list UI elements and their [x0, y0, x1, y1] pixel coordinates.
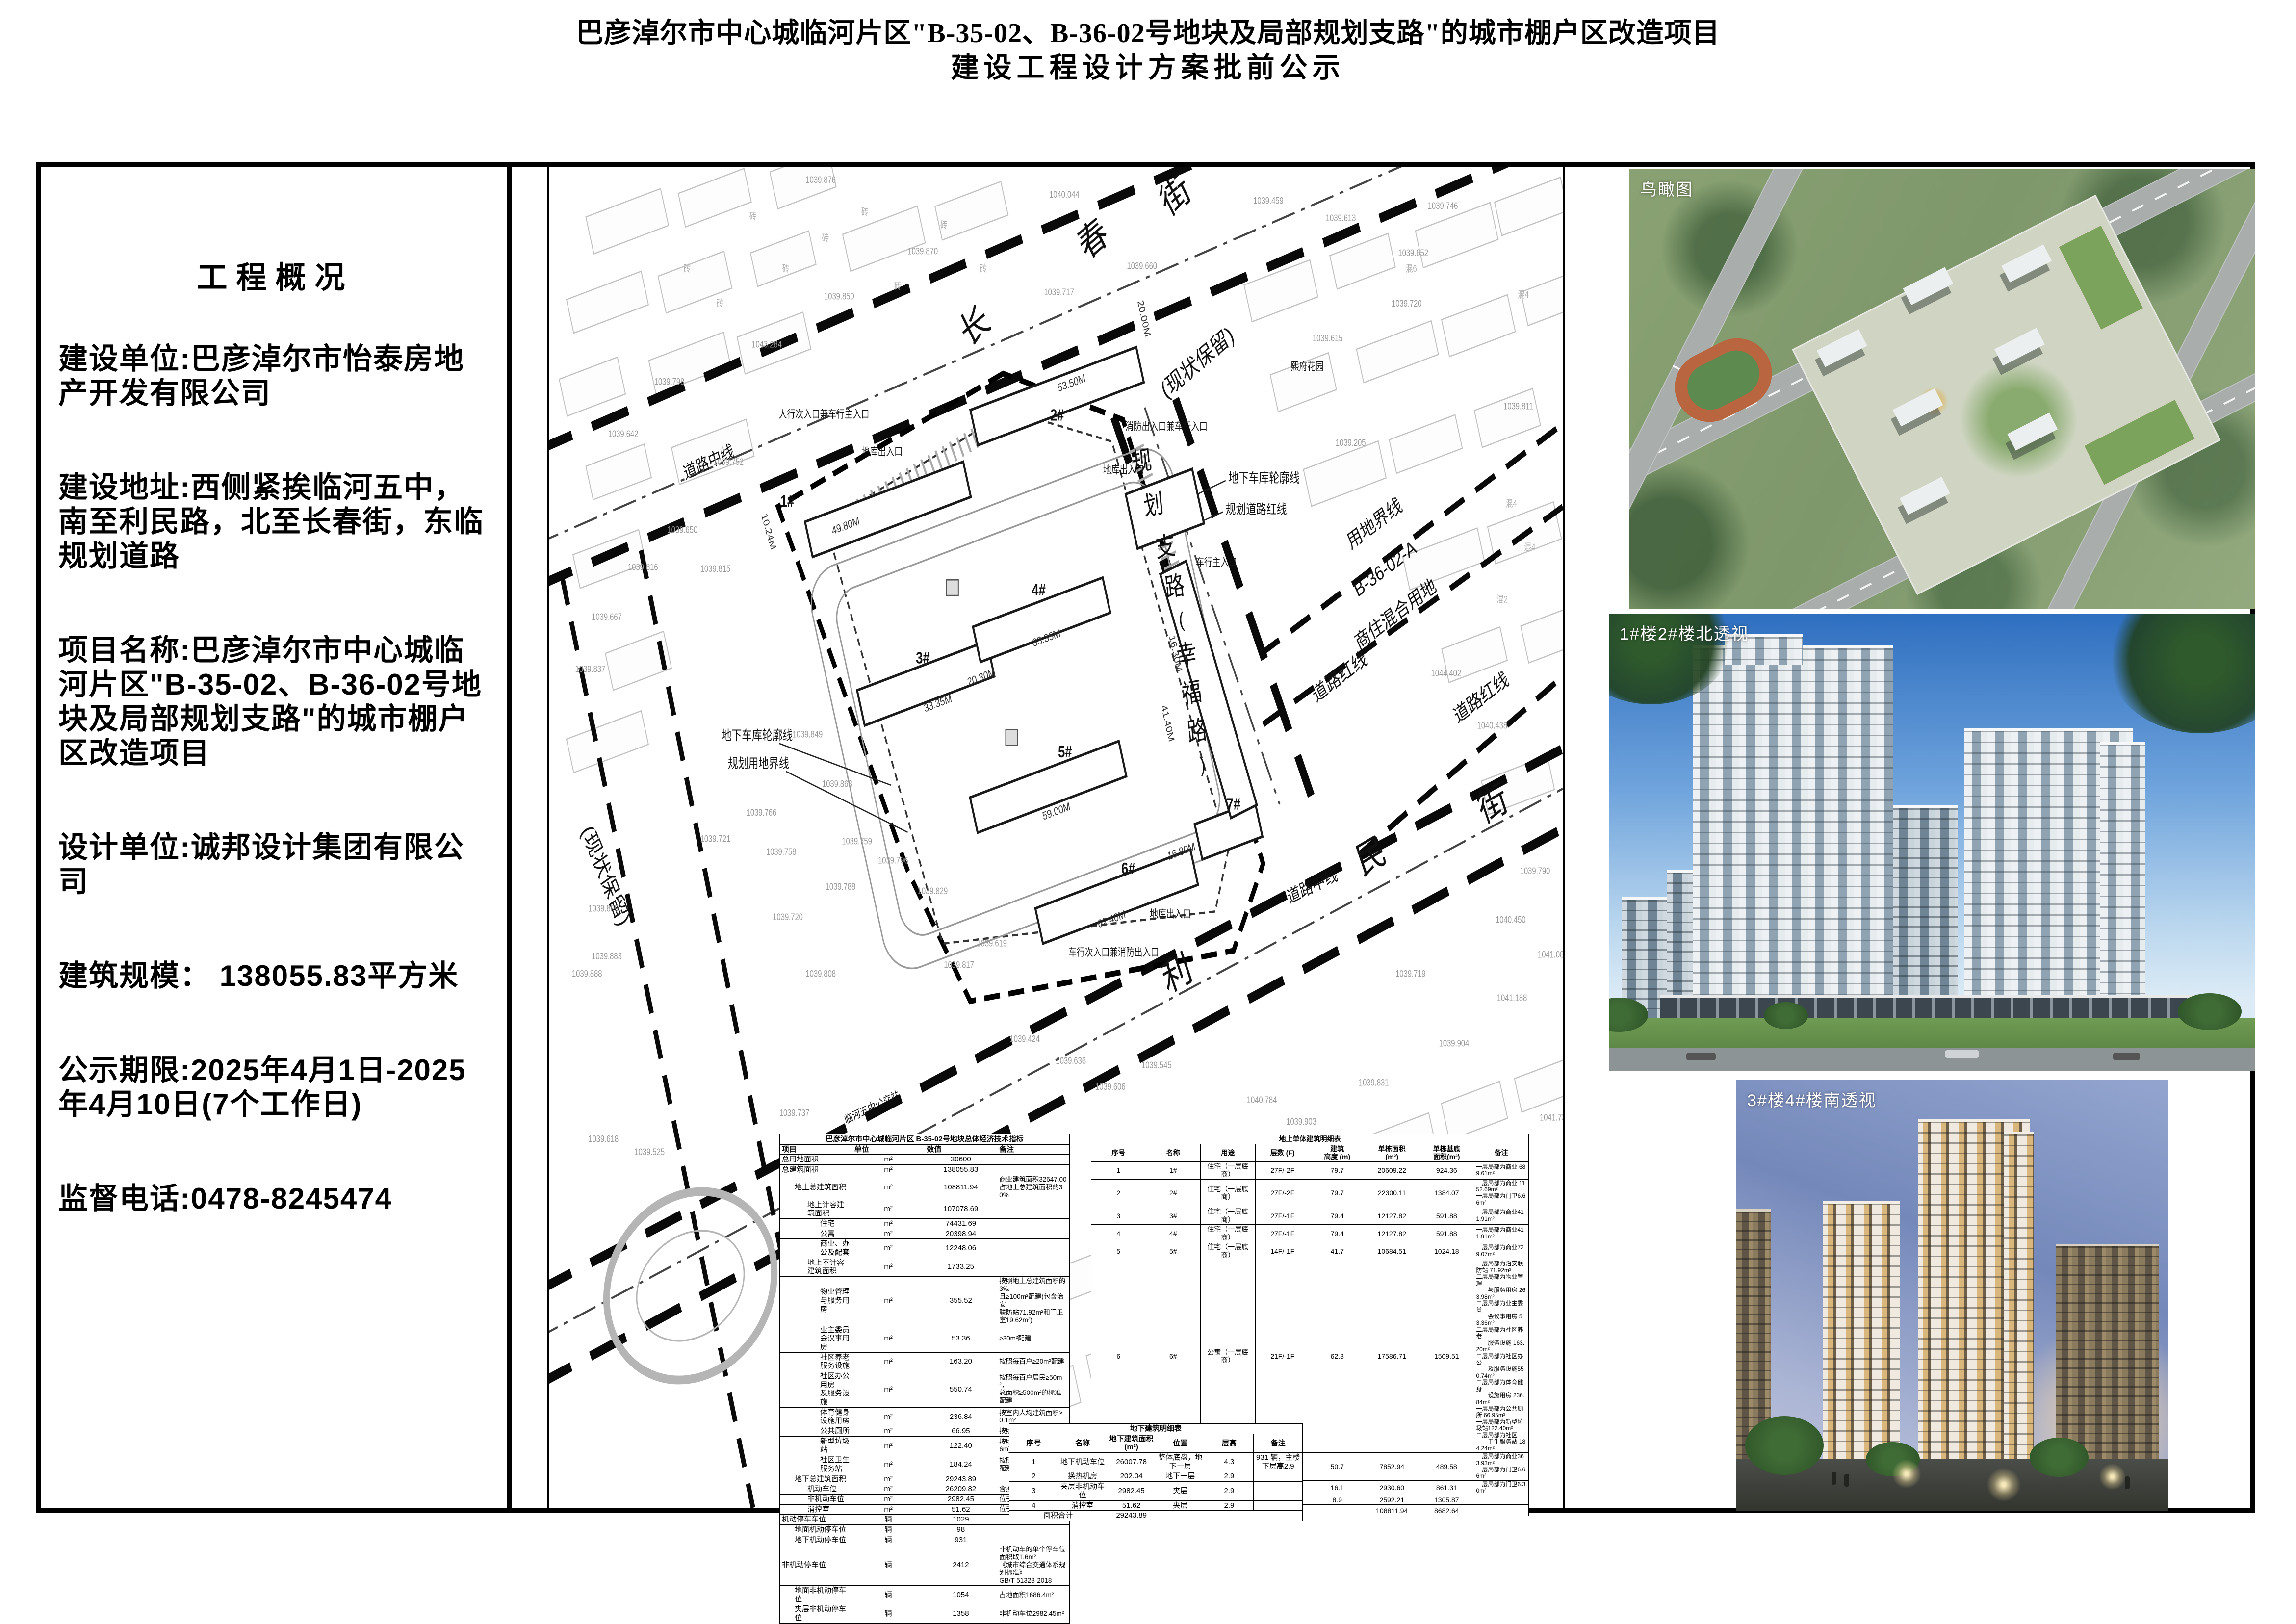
plan-label-spot: 1040.784 — [1247, 1094, 1277, 1106]
parcel-outline — [1330, 233, 1395, 289]
plan-label-spot: 1041.188 — [1497, 992, 1527, 1004]
project-overview-panel: 工程概况 建设单位:巴彦淖尔市怡泰房地产开发有限公司建设地址:西侧紧挨临河五中，… — [41, 167, 507, 1508]
plan-label-spot: 1039.798 — [654, 376, 685, 387]
rendering-aerial: 鸟瞰图 — [1629, 169, 2255, 609]
table-row: 地面机动停车位辆98 — [780, 1524, 1070, 1535]
grass-strip — [1609, 1018, 2255, 1050]
plan-label-spot: 1040.044 — [1049, 189, 1080, 200]
table-cell — [997, 1524, 1070, 1535]
aerial-running-track — [1663, 326, 1784, 434]
plan-label-spot: 1043.284 — [751, 338, 782, 350]
table-header: 位置 — [1156, 1434, 1205, 1452]
table-cell: m² — [852, 1371, 925, 1407]
aerial-site-block — [1792, 195, 2220, 595]
table-cell — [997, 1239, 1070, 1258]
table-cell: 924.36 — [1419, 1161, 1474, 1179]
overview-paragraph: 公示期限:2025年4月1日-2025年4月10日(7个工作日) — [58, 1053, 492, 1122]
table-cell: 22300.11 — [1365, 1179, 1419, 1207]
table-cell: m² — [852, 1352, 925, 1371]
table-cell: ≥30m²配建 — [997, 1325, 1070, 1352]
parcel-outline — [567, 271, 648, 333]
aerial-tower — [1893, 389, 1943, 427]
table-cell: 总建筑面积 — [780, 1165, 852, 1175]
table-cell: 业主委员会议事用房 — [780, 1325, 852, 1352]
plan-label-spot: 1041.738 — [1540, 1111, 1563, 1123]
plan-label-spot: 1039.903 — [1286, 1116, 1316, 1127]
table-cell: 74431.69 — [925, 1218, 997, 1229]
table-cell: m² — [852, 1436, 925, 1455]
plan-label-big: 长 — [954, 297, 996, 354]
tower-3 — [1823, 1201, 1900, 1470]
table-cell: m² — [852, 1155, 925, 1165]
table-row: 公寓m²20398.94 — [780, 1229, 1070, 1239]
aerial-tower — [2001, 245, 2052, 283]
table-cell: 8.9 — [1310, 1495, 1365, 1505]
plan-label-spot: 1039.829 — [918, 885, 948, 897]
table-cell: 辆 — [852, 1515, 925, 1525]
person — [2125, 1476, 2130, 1489]
table-cell: 26007.78 — [1107, 1453, 1156, 1471]
overview-paragraph: 项目名称:巴彦淖尔市中心城临河片区"B-35-02、B-36-02号地块及局部规… — [58, 633, 492, 771]
car — [1945, 1050, 1979, 1058]
parcel-outline — [586, 189, 669, 254]
table-cell: 夹层非机动停车位 — [780, 1604, 852, 1623]
table-header: 单栋面积 (m²) — [1365, 1144, 1419, 1161]
rendering-south-view: 3#楼4#楼南透视 — [1736, 1080, 2168, 1511]
plan-label-spot: 1039.619 — [977, 937, 1007, 949]
table-cell: m² — [852, 1239, 925, 1258]
tower-2-wing — [2100, 742, 2145, 1014]
table-cell: m² — [852, 1407, 925, 1426]
plan-label-spot: 1041.087 — [1538, 949, 1563, 960]
plan-label-spot: 1039.868 — [822, 778, 852, 790]
overview-paragraphs: 建设单位:巴彦淖尔市怡泰房地产开发有限公司建设地址:西侧紧挨临河五中，南至利民路… — [58, 342, 492, 1216]
table-cell: m² — [852, 1229, 925, 1239]
table-cell: 1509.51 — [1419, 1260, 1474, 1453]
plan-label-med: 支 — [1154, 531, 1177, 564]
aerial-tower — [1817, 330, 1867, 367]
table-row: 3夹层非机动车位2982.45夹层2.9 — [1009, 1482, 1303, 1500]
plan-label-spot: 1039.652 — [1398, 247, 1428, 258]
plan-label-spot: 1039.904 — [1439, 1037, 1470, 1049]
table-row: 地上不计容建筑面积m²1733.25 — [780, 1258, 1070, 1276]
table-cell — [997, 1155, 1070, 1165]
underground-buildings-table: 地下建筑明细表序号名称地下建筑面积(m²)位置层高备注1地下机动车位26007.… — [1009, 1423, 1303, 1521]
table-cell: 住宅（一层底商） — [1201, 1242, 1256, 1260]
parcel-outline — [935, 181, 1008, 240]
plan-label-spot: 1039.849 — [793, 728, 823, 740]
table-row: 2换热机房202.04地下一层2.9 — [1009, 1471, 1303, 1482]
table-cell: 地上计容建筑面积 — [780, 1200, 852, 1218]
plan-label-m2: 道路红线 — [1309, 647, 1370, 707]
plan-label-spot: 1044.402 — [1431, 668, 1462, 679]
table-cell: 29243.89 — [1107, 1511, 1156, 1521]
table-cell: 新型垃圾站 — [780, 1436, 852, 1455]
table-title: 巴彦淖尔市中心城临河片区 B-35-02号地块总体经济技术指标 — [780, 1134, 1070, 1145]
plan-label-spot: 1039.636 — [1056, 1055, 1086, 1066]
table-cell: 66.95 — [925, 1426, 997, 1437]
table-cell: 1054 — [925, 1585, 997, 1604]
economic-indicators-table: 巴彦淖尔市中心城临河片区 B-35-02号地块总体经济技术指标项目单位数值备注总… — [779, 1134, 1070, 1624]
aerial-tower — [1903, 267, 1953, 305]
plan-label-mat: 砖 — [894, 280, 902, 291]
table-cell: 550.74 — [925, 1371, 997, 1407]
table-cell: 一层局部为门卫6.30m² — [1474, 1480, 1529, 1495]
table-cell: 79.4 — [1310, 1225, 1365, 1242]
table-title-row: 地下建筑明细表 — [1009, 1424, 1303, 1434]
table-cell: 12127.82 — [1365, 1225, 1419, 1242]
table-cell: 26209.82 — [925, 1484, 997, 1495]
table-row: 地上总建筑面积m²108811.94商业建筑面积32647.00 占地上总建筑面… — [780, 1175, 1070, 1200]
overview-paragraph: 建筑规模： 138055.83平方米 — [58, 959, 492, 993]
plan-label-spot: 1039.752 — [714, 456, 744, 467]
parcel-outline — [1357, 321, 1439, 383]
plan-label-tiny: 人行次入口兼车行主入口 — [779, 409, 869, 421]
table-cell: 98 — [925, 1524, 997, 1535]
table-row: 项目单位数值备注 — [780, 1144, 1070, 1155]
table-cell: 住宅（一层底商） — [1201, 1207, 1256, 1225]
table-cell: 非机动车位 — [780, 1494, 852, 1504]
table-cell: 20398.94 — [925, 1229, 997, 1239]
plan-label-bld: 2# — [1050, 406, 1064, 424]
overview-paragraph: 建设地址:西侧紧挨临河五中，南至利民路，北至长春街，东临规划道路 — [58, 470, 492, 573]
table-header: 备注 — [1254, 1434, 1303, 1452]
table-header: 建筑 高度 (m) — [1310, 1144, 1365, 1161]
table-cell: 138055.83 — [925, 1165, 997, 1175]
plan-label-med: 路 — [1186, 715, 1208, 748]
table-cell: 108811.94 — [925, 1175, 997, 1200]
plan-label-mat: 混2 — [1496, 593, 1508, 605]
aerial-tower — [1994, 328, 2045, 365]
table-cell: 14F/-1F — [1255, 1242, 1310, 1260]
plan-label-med: 路 — [1163, 571, 1186, 604]
plan-label-mat: 砖 — [940, 219, 948, 231]
table-row: 物业管理与服务用房m²355.52按照地上总建筑面积的3‰ 且≥100m²配建(… — [780, 1277, 1070, 1325]
plan-label-big: 利 — [1157, 946, 1197, 1001]
parcel-outline — [1442, 295, 1515, 357]
table-cell: 7852.94 — [1365, 1453, 1419, 1481]
table-cell: 商业建筑面积32647.00 占地上总建筑面积的30% — [997, 1175, 1070, 1200]
plan-label-spot: 1039.525 — [634, 1146, 665, 1158]
table-cell: m² — [852, 1484, 925, 1495]
table-cell: 总用地面积 — [780, 1155, 852, 1165]
table-row: 地下机动停车位辆931 — [780, 1535, 1070, 1545]
table-cell: 1 — [1009, 1453, 1058, 1471]
table-cell: 夹层非机动车位 — [1058, 1482, 1107, 1500]
overview-paragraph: 设计单位:诚邦设计集团有限公司 — [58, 830, 492, 899]
table-cell: m² — [852, 1258, 925, 1276]
aerial-tower — [1900, 477, 1950, 515]
table-cell: 79.4 — [1310, 1207, 1365, 1225]
table-header: 单位 — [852, 1144, 925, 1155]
table-cell: 51.62 — [1107, 1500, 1156, 1511]
plan-label-mat: 砖 — [782, 263, 790, 274]
plan-label-spot: 1039.459 — [1253, 195, 1284, 206]
table-cell — [1474, 1506, 1529, 1516]
table-row: 1地下机动车位26007.78整体底盘，地下一层4.3931 辆，主楼下层高2.… — [1009, 1453, 1303, 1471]
table-cell: 2982.45 — [1107, 1482, 1156, 1500]
parcel-outline — [586, 444, 651, 500]
table-cell: 商业、办公及配套 — [780, 1239, 852, 1258]
plan-label-spot: 1039.850 — [824, 291, 854, 302]
table-cell: m² — [852, 1277, 925, 1325]
plan-label-bld: 1# — [780, 492, 795, 511]
table-cell: 公寓 — [780, 1229, 852, 1239]
table-header: 备注 — [997, 1144, 1070, 1155]
plan-label-spot: 1039.720 — [1392, 298, 1422, 309]
table-cell: 2930.60 — [1365, 1480, 1419, 1495]
parcel-outline — [1521, 598, 1563, 663]
plan-label-callout: 地下车库轮廓线 — [1228, 471, 1300, 486]
parcel-outline — [1442, 1082, 1508, 1140]
plan-label-spot: 1039.766 — [747, 807, 777, 818]
table-cell: 4 — [1091, 1225, 1146, 1242]
plan-label-spot: 1039.642 — [608, 428, 639, 439]
table-header: 名称 — [1058, 1434, 1107, 1452]
table-cell: 79.7 — [1310, 1179, 1365, 1207]
table-row: 4消控室51.62夹层2.9 — [1009, 1500, 1303, 1511]
table-row: 地上计容建筑面积m²107078.69 — [780, 1200, 1070, 1218]
table-cell: 41.7 — [1310, 1242, 1365, 1260]
table-cell: 夹层 — [1156, 1482, 1205, 1500]
table-cell: 3 — [1091, 1207, 1146, 1225]
overview-paragraph: 建设单位:巴彦淖尔市怡泰房地产开发有限公司 — [58, 342, 492, 411]
plan-label-spot: 1039.618 — [589, 1134, 619, 1145]
table-header: 地下建筑面积(m²) — [1107, 1434, 1156, 1452]
plan-label-par: ) — [1199, 753, 1207, 777]
parcel-outline — [1389, 415, 1462, 473]
plan-label-dim: 20.00M — [1135, 299, 1153, 338]
table-cell: 按照地上总建筑面积的3‰ 且≥100m²配建(包含治安 联防站71.92m²和门… — [997, 1277, 1070, 1325]
plan-label-mat: 砖 — [717, 298, 724, 309]
plan-label-mat: 砖 — [861, 206, 869, 218]
plan-label-tiny: 地库出入口 — [861, 446, 903, 458]
page-subtitle: 建设工程设计方案批前公示 — [0, 45, 2296, 85]
table-row: 业主委员会议事用房m²53.36≥30m²配建 — [780, 1325, 1070, 1352]
table-cell: 591.88 — [1419, 1207, 1474, 1225]
table-header: 数值 — [925, 1144, 997, 1155]
plan-label-tiny: 车行次入口兼消防出入口 — [1068, 947, 1159, 959]
table-cell: 931 辆，主楼下层高2.9 — [1254, 1453, 1303, 1471]
table-row: 总建筑面积m²138055.83 — [780, 1165, 1070, 1175]
table-row: 社区养老服务设施m²163.20按照每百户≥20m²配建 — [780, 1352, 1070, 1371]
table-title-row: 巴彦淖尔市中心城临河片区 B-35-02号地块总体经济技术指标 — [780, 1134, 1070, 1145]
table-cell: 一层局部为治安联防站 71.92m² 二层局部为物业管理 与服务用房 263.9… — [1474, 1260, 1529, 1453]
table-cell: 591.88 — [1419, 1225, 1474, 1242]
aerial-podium-roof — [2058, 224, 2144, 331]
table-cell — [1254, 1482, 1303, 1500]
plan-label-callout: 规划用地界线 — [728, 756, 789, 771]
total-row: 面积合计29243.89 — [1009, 1511, 1303, 1521]
table-cell: 8682.64 — [1419, 1506, 1474, 1516]
plan-label-cz: (现状保留) — [1158, 322, 1238, 404]
table-cell: m² — [852, 1218, 925, 1229]
tower-1 — [1693, 645, 1893, 1014]
table-cell: 地下机动停车位 — [780, 1535, 852, 1545]
plan-label-tiny: 熙府花园 — [1291, 361, 1324, 373]
table-cell: 住宅（一层底商） — [1201, 1179, 1256, 1207]
table-cell: 27F/-2F — [1255, 1161, 1310, 1179]
table-cell: 一层局部为商业411.91m² — [1474, 1207, 1529, 1225]
table-cell: 住宅（一层底商） — [1201, 1161, 1256, 1179]
table-cell — [1156, 1511, 1302, 1521]
table-header: 用途 — [1201, 1144, 1256, 1161]
table-row: 商业、办公及配套m²12248.06 — [780, 1239, 1070, 1258]
table-cell: 非机动车的单个停车位面积取1.6m² 《城市综合交通体系规划标准》 GB/T 5… — [997, 1545, 1070, 1586]
table-cell: m² — [852, 1175, 925, 1200]
table-cell — [997, 1229, 1070, 1239]
table-cell: 机动停车车位 — [780, 1515, 852, 1525]
plan-label-spot: 1040.450 — [1496, 914, 1526, 925]
table-cell: 社区卫生服务站 — [780, 1455, 852, 1474]
table-cell — [1254, 1500, 1303, 1511]
parcel-outline — [1474, 388, 1541, 447]
table-cell: 2 — [1091, 1179, 1146, 1207]
plan-label-mat: 砖 — [749, 210, 757, 222]
table-cell: 107078.69 — [925, 1200, 997, 1218]
table-row: 序号名称用途层数 (F)建筑 高度 (m)单栋面积 (m²)单栋基底 面积(m²… — [1091, 1144, 1529, 1161]
table-cell: 3 — [1009, 1482, 1058, 1500]
table-cell: 2982.45 — [925, 1494, 997, 1504]
table-header: 项目 — [780, 1144, 852, 1155]
table-cell: 5 — [1091, 1242, 1146, 1260]
plan-label-spot: 1039.721 — [700, 833, 731, 844]
plan-label-spot: 1039.650 — [668, 524, 698, 535]
table-cell: 62.3 — [1310, 1260, 1365, 1453]
table-header: 层数 (F) — [1255, 1144, 1310, 1161]
plan-label-bld: 4# — [1032, 581, 1046, 599]
table-cell: 地上不计容建筑面积 — [780, 1258, 852, 1276]
parcel-outline — [843, 206, 926, 271]
plan-label-m2: 用地界线 — [1344, 493, 1405, 553]
person — [1844, 1474, 1849, 1487]
table-cell: 社区办公用房 及服务设施 — [780, 1371, 852, 1407]
table-cell: 4# — [1146, 1225, 1201, 1242]
table-cell: 按照每百户≥20m²配建 — [997, 1352, 1070, 1371]
table-cell — [997, 1258, 1070, 1276]
table-header: 序号 — [1009, 1434, 1058, 1452]
table-cell: 机动车位 — [780, 1484, 852, 1495]
plan-label-spot: 1039.660 — [1127, 260, 1157, 272]
table-cell: 489.58 — [1419, 1453, 1474, 1481]
parcel-outline — [1244, 260, 1317, 322]
table-row: 地面非机动停车位辆1054占地面积1686.4m² — [780, 1585, 1070, 1604]
plan-label-spot: 1039.720 — [773, 911, 803, 923]
table-cell: 2.9 — [1205, 1482, 1254, 1500]
table-cell: 50.7 — [1310, 1453, 1365, 1481]
rendering-north-view: 1#楼2#楼北透视 — [1609, 614, 2255, 1071]
aerial-podium-roof — [2083, 399, 2196, 486]
table-cell: 27F/-1F — [1255, 1225, 1310, 1242]
plan-label-tiny: 地库出入口 — [1103, 464, 1144, 477]
table-title-row: 地上单体建筑明细表 — [1091, 1134, 1529, 1144]
table-cell: 2592.21 — [1365, 1495, 1419, 1505]
plan-label-spot: 1039.809 — [589, 902, 619, 914]
overview-heading: 工程概况 — [58, 253, 492, 297]
notice-poster: 巴彦淖尔市中心城临河片区"B-35-02、B-36-02号地块及局部规划支路"的… — [0, 0, 2296, 1624]
table-cell: 861.31 — [1419, 1480, 1474, 1495]
table-cell: 1305.87 — [1419, 1495, 1474, 1505]
table-cell: 51.62 — [925, 1504, 997, 1515]
table-cell: 消控室 — [780, 1504, 852, 1515]
table-cell: 27F/-1F — [1255, 1207, 1310, 1225]
table-cell: 1384.07 — [1419, 1179, 1474, 1207]
plan-label-dim: 41.40M — [1159, 703, 1176, 743]
table-row: 33#住宅（一层底商）27F/-1F79.412127.82591.88一层局部… — [1091, 1207, 1529, 1225]
table-title: 地上单体建筑明细表 — [1091, 1134, 1529, 1144]
table-header: 单栋基底 面积(m²) — [1419, 1144, 1474, 1161]
plan-label-spot: 1039.870 — [908, 245, 938, 257]
table-cell: 163.20 — [925, 1352, 997, 1371]
aerial-tower — [2008, 413, 2058, 451]
plan-label-tiny: 地库出入口 — [1150, 908, 1191, 921]
table-cell: 公共厕所 — [780, 1426, 852, 1437]
plan-label-mat: 混4 — [1506, 498, 1517, 509]
table-row: 55#住宅（一层底商）14F/-1F41.710684.511024.18一层局… — [1091, 1242, 1529, 1260]
parcel-outline — [1515, 1050, 1563, 1112]
plan-label-dim: 10.24M — [759, 512, 778, 551]
plan-label-spot: 1039.759 — [842, 836, 872, 847]
overview-paragraph: 监督电话:0478-8245474 — [58, 1182, 492, 1216]
table-cell: 29243.89 — [925, 1474, 997, 1484]
plan-label-spot: 1039.424 — [1010, 1033, 1040, 1045]
table-row: 11#住宅（一层底商）27F/-2F79.720609.22924.36一层局部… — [1091, 1161, 1529, 1179]
plan-label-spot: 1039.837 — [575, 663, 606, 674]
table-cell — [997, 1165, 1070, 1175]
plan-label-mat: 混4 — [1524, 541, 1535, 553]
plan-label-mat: 混4 — [1518, 289, 1529, 300]
plan-label-med: 划 — [1142, 489, 1165, 522]
plan-label-spot: 1039.811 — [1503, 400, 1533, 412]
plan-label-spot: 1039.667 — [592, 611, 622, 622]
table-row: 非机动停车位辆2412非机动车的单个停车位面积取1.6m² 《城市综合交通体系规… — [780, 1545, 1070, 1586]
table-cell: 1733.25 — [925, 1258, 997, 1276]
table-cell: 184.24 — [925, 1455, 997, 1474]
parcel-outline — [1495, 177, 1563, 235]
plan-label-callout: 规划道路红线 — [1226, 502, 1287, 517]
table-cell — [997, 1218, 1070, 1229]
table-cell: 体育健身设施用房 — [780, 1407, 852, 1426]
plan-label-spot: 1039.746 — [1428, 200, 1458, 211]
plan-label-spot: 1039.883 — [592, 951, 622, 962]
table-cell: 地下机动车位 — [1058, 1453, 1107, 1471]
plan-label-mat: 砖 — [980, 263, 987, 274]
plan-label-spot: 1039.790 — [1520, 865, 1550, 876]
table-header: 备注 — [1474, 1144, 1529, 1161]
table-cell: 非机动车位2982.45m² — [997, 1604, 1070, 1623]
plan-label-callout: 地下车库轮廓线 — [722, 728, 793, 743]
table-cell: 10684.51 — [1365, 1242, 1419, 1260]
table-title: 地下建筑明细表 — [1009, 1424, 1303, 1434]
table-cell: 2.9 — [1205, 1471, 1254, 1482]
table-cell: 108811.94 — [1365, 1506, 1419, 1516]
table-cell: 住宅 — [780, 1218, 852, 1229]
table-cell: 2# — [1146, 1179, 1201, 1207]
plan-label-spot: 1039.613 — [1326, 212, 1356, 224]
plan-label-tiny: 消防出入口兼车行入口 — [1125, 421, 1208, 433]
table-cell: 2412 — [925, 1545, 997, 1586]
plan-label-spot: 1039.615 — [1313, 333, 1343, 344]
table-cell: 355.52 — [925, 1277, 997, 1325]
background-tower — [1893, 805, 1958, 1019]
plan-label-bld: 3# — [916, 649, 930, 667]
plan-label-spot: 1039.808 — [805, 968, 836, 979]
total-label: 面积合计 — [1009, 1511, 1107, 1521]
plan-label-bld: 6# — [1121, 860, 1135, 878]
plan-label-spot: 1039.205 — [1336, 437, 1366, 448]
table-cell — [997, 1535, 1070, 1545]
table-cell: m² — [852, 1165, 925, 1175]
